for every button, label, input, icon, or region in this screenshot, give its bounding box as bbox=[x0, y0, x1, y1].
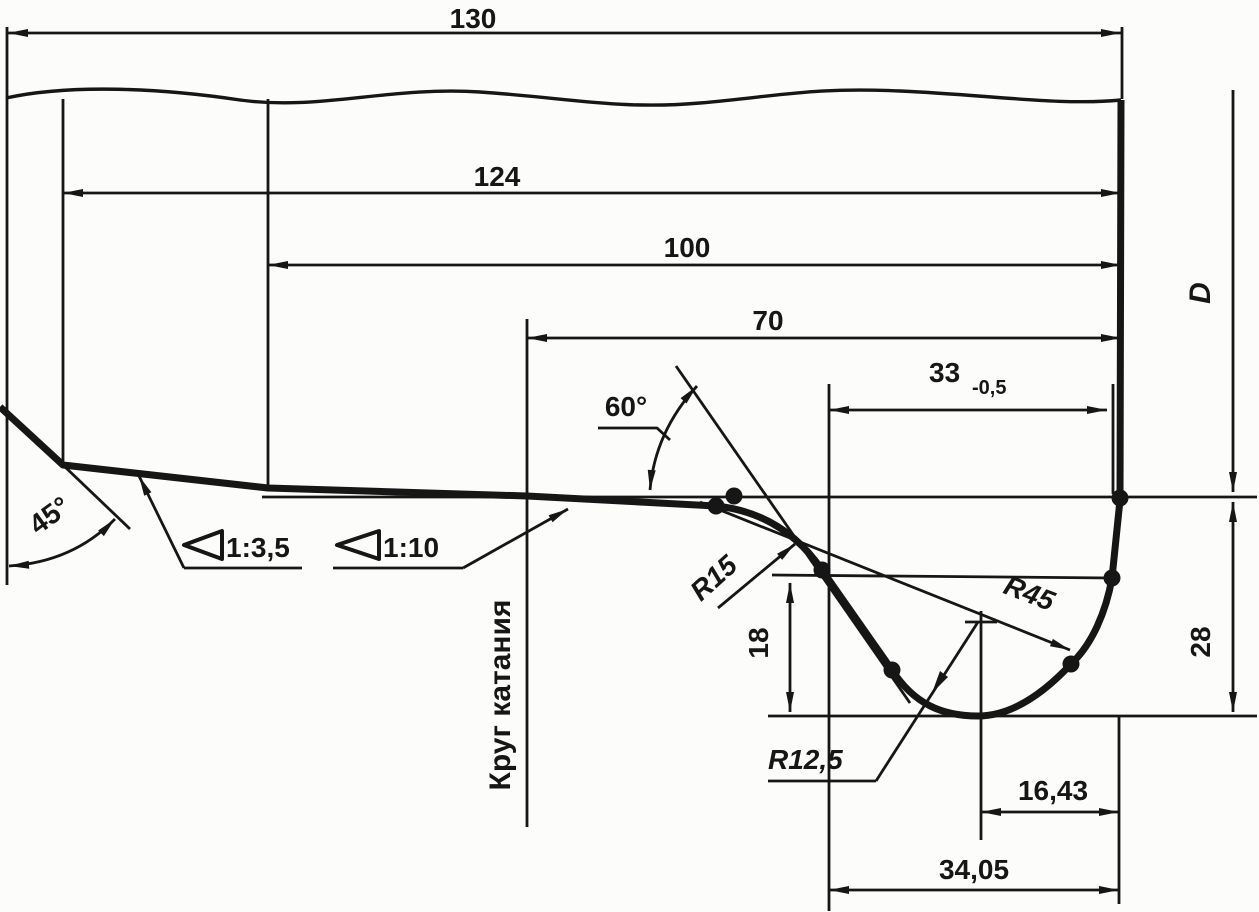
dimension-labels: 130 124 100 70 33 -0,5 16,43 34,05 D 28 … bbox=[23, 3, 1217, 885]
dim-34-05-label: 34,05 bbox=[939, 854, 1009, 885]
taper-triangle-icon-1-10 bbox=[337, 531, 379, 559]
angle-arc-60 bbox=[650, 386, 697, 490]
tangency-dot-face-tip bbox=[884, 662, 901, 679]
tangency-dot-tip-r45 bbox=[1063, 656, 1080, 673]
taper-1-10-label: 1:10 bbox=[383, 532, 439, 563]
tangency-dot-inner-face bbox=[1112, 490, 1129, 507]
dim-124-label: 124 bbox=[474, 161, 521, 192]
dim-100-label: 100 bbox=[664, 232, 711, 263]
dimension-lines bbox=[8, 33, 1233, 890]
dim-130-label: 130 bbox=[450, 3, 497, 34]
taper-1-3-5-label: 1:3,5 bbox=[226, 532, 290, 563]
dim-70-label: 70 bbox=[752, 305, 783, 336]
leader-r12-5 bbox=[876, 622, 978, 781]
dim-18-label: 18 bbox=[743, 627, 774, 658]
leader-taper-1-10 bbox=[463, 509, 568, 568]
dim-33-label: 33 bbox=[929, 357, 960, 388]
radius-r15-label: R15 bbox=[684, 549, 743, 607]
dim-33-tolerance-label: -0,5 bbox=[972, 377, 1006, 399]
tangency-dot-r15-face bbox=[814, 562, 831, 579]
dim-diameter-label: D bbox=[1184, 282, 1217, 304]
tangency-dot-tread-r15 bbox=[708, 498, 725, 515]
leader-60-label bbox=[598, 428, 670, 440]
leader-taper-1-3-5 bbox=[139, 476, 184, 568]
dim-28-label: 28 bbox=[1185, 626, 1216, 657]
angle-60-label: 60° bbox=[605, 391, 647, 422]
radius-r12-5-label: R12,5 bbox=[768, 744, 843, 775]
tangency-dot-r45-back bbox=[1104, 570, 1121, 587]
taper-triangle-icon-1-3-5 bbox=[184, 531, 222, 559]
angle-45-label: 45° bbox=[23, 490, 75, 540]
wheel-profile-drawing: 130 124 100 70 33 -0,5 16,43 34,05 D 28 … bbox=[0, 0, 1259, 912]
rolling-circle-label: Круг катания bbox=[484, 600, 517, 791]
angle-arc-45 bbox=[9, 519, 115, 566]
tangency-dot-rolling-line bbox=[726, 488, 743, 505]
dim-16-43-label: 16,43 bbox=[1018, 775, 1088, 806]
drawing-canvas: 130 124 100 70 33 -0,5 16,43 34,05 D 28 … bbox=[0, 0, 1259, 912]
leader-lines bbox=[139, 428, 1070, 781]
break-line-wavy bbox=[6, 89, 1121, 105]
